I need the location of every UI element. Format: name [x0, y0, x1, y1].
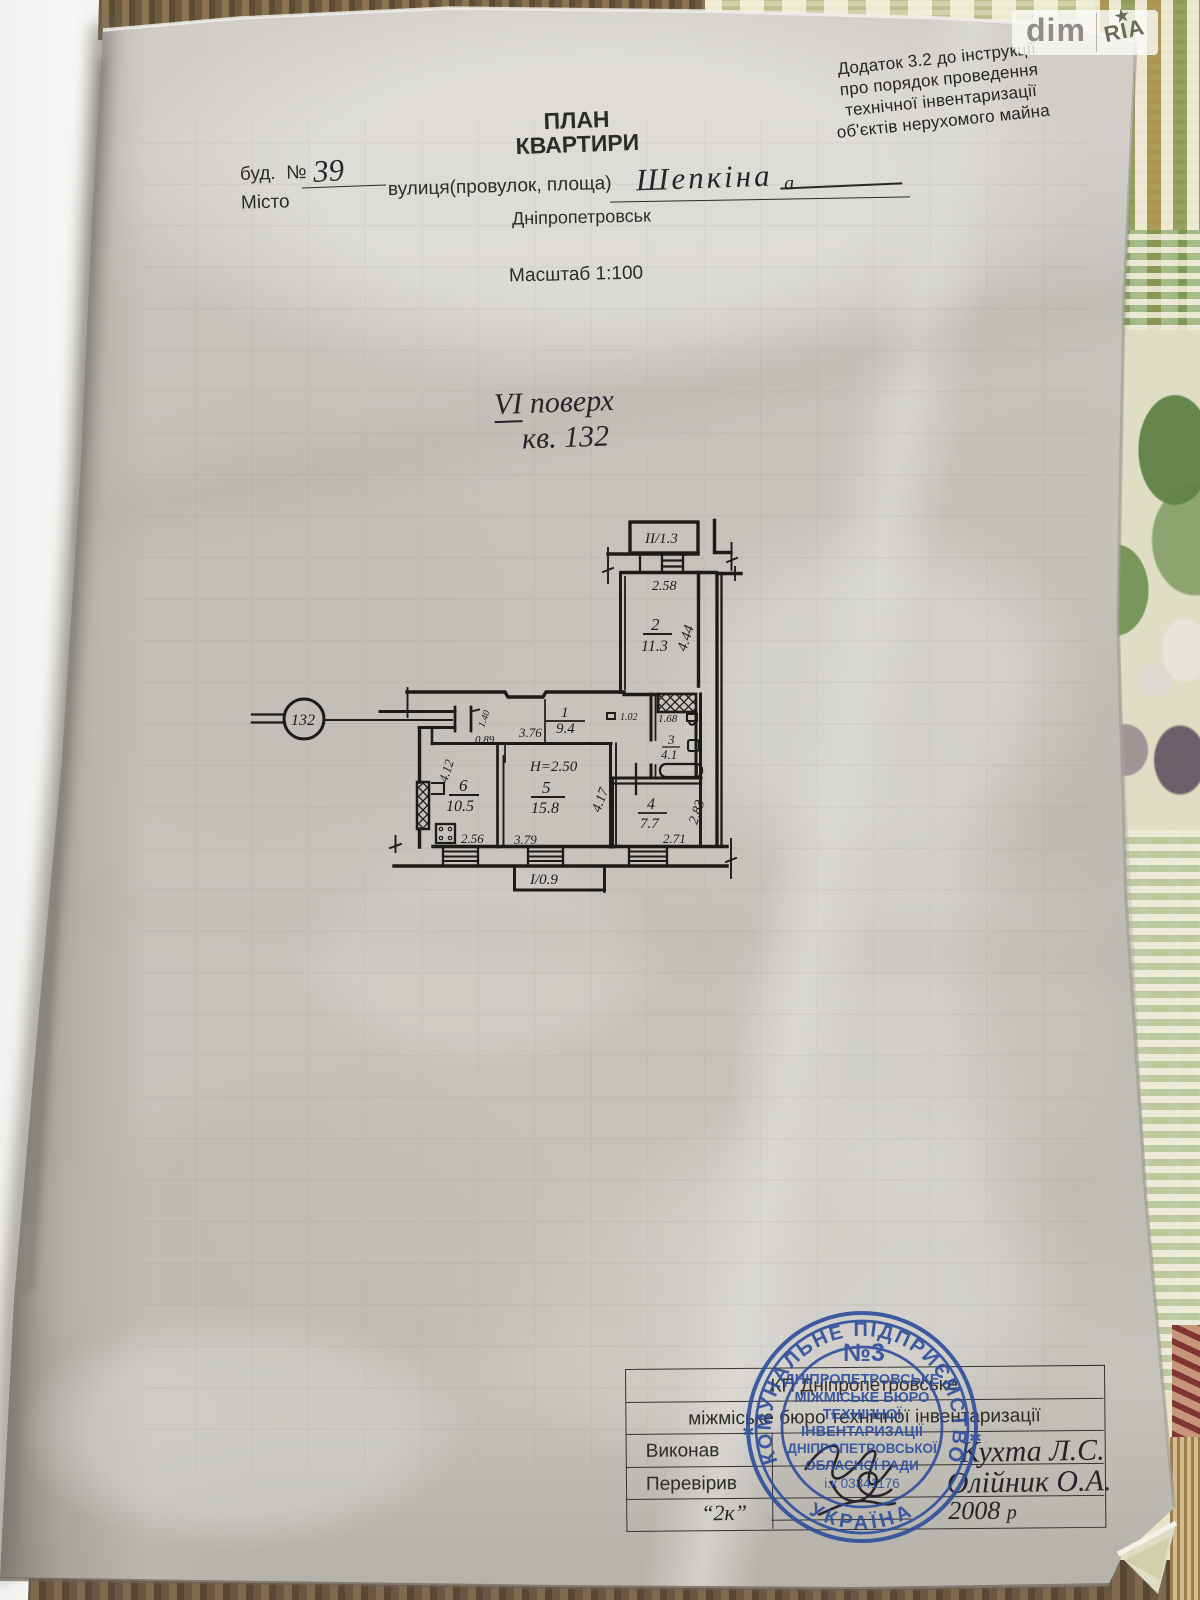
svg-text:ДНІПРОПЕТРОВСЬКЕ: ДНІПРОПЕТРОВСЬКЕ	[784, 1372, 939, 1388]
svg-text:№3: №3	[843, 1339, 885, 1367]
svg-text:УКРАЇНА: УКРАЇНА	[806, 1499, 918, 1534]
svg-text:МІЖМІСЬКЕ БЮРО: МІЖМІСЬКЕ БЮРО	[795, 1390, 930, 1406]
svg-text:ДНІПРОПЕТРОВСЬКОЇ: ДНІПРОПЕТРОВСЬКОЇ	[787, 1441, 938, 1456]
svg-text:✱: ✱	[742, 1424, 755, 1441]
svg-text:ОБЛАСНОЇ РАДИ: ОБЛАСНОЇ РАДИ	[805, 1458, 919, 1473]
svg-text:і.к 03341176: і.к 03341176	[824, 1476, 899, 1491]
svg-text:ІНВЕНТАРИЗАЦІЇ: ІНВЕНТАРИЗАЦІЇ	[801, 1423, 924, 1440]
svg-text:✱: ✱	[969, 1430, 982, 1447]
svg-text:ТЕХНІЧНОЇ: ТЕХНІЧНОЇ	[823, 1406, 903, 1423]
